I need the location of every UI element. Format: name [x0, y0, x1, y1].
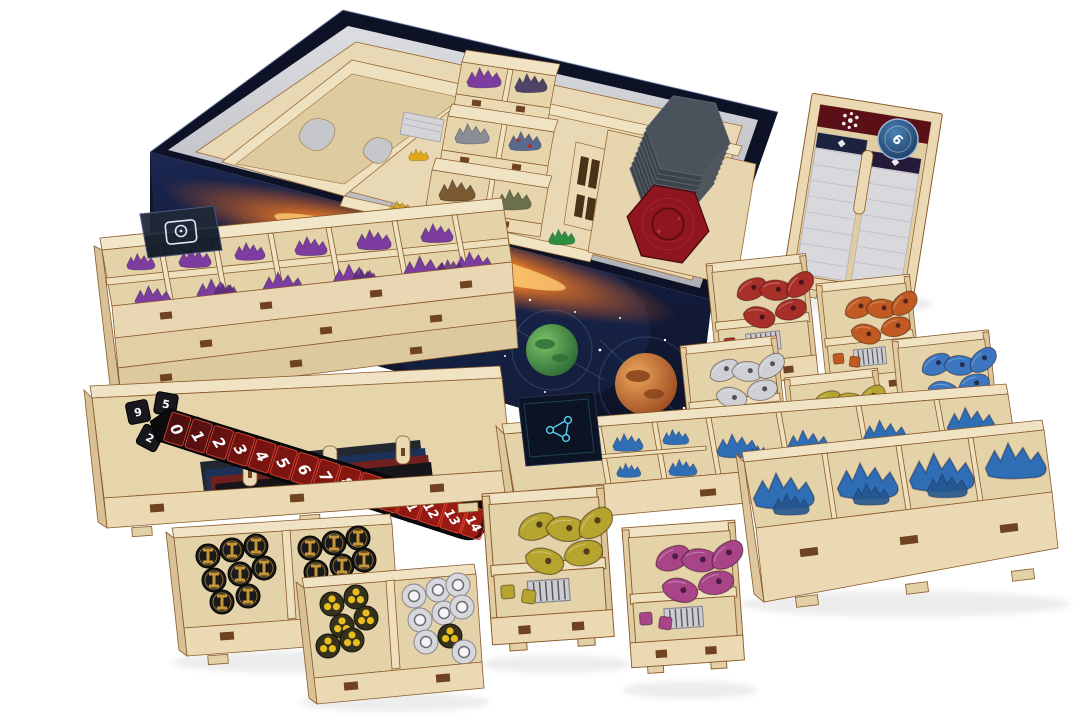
tech-deck	[518, 392, 602, 466]
faction-tray-magenta	[622, 519, 756, 674]
product-photo: 6	[0, 0, 1080, 720]
card-deck	[140, 206, 222, 258]
victory-track-tray: 9 5 2 6 01234	[84, 366, 514, 545]
planet-green	[526, 324, 578, 376]
planet-orange	[615, 353, 677, 415]
large-ships-tray	[736, 420, 1058, 607]
round-tokens-tray	[296, 564, 484, 704]
faction-tray-yellow-front	[482, 485, 627, 653]
